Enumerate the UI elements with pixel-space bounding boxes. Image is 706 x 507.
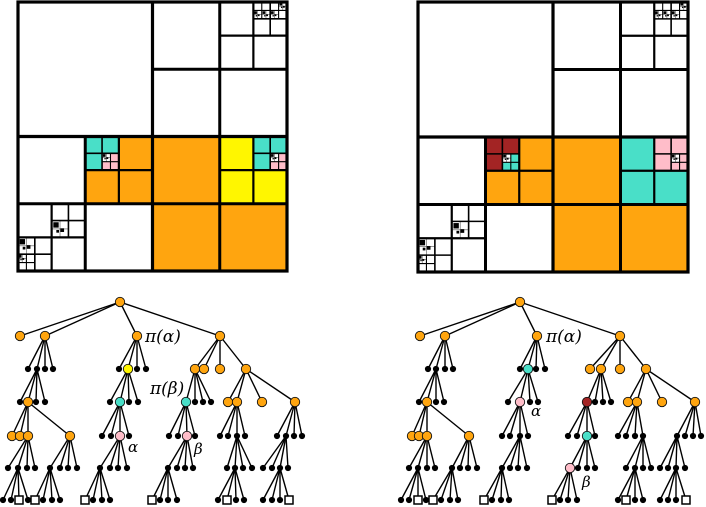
qt-cell-p xyxy=(110,162,118,170)
tree-node-o xyxy=(232,397,241,406)
qt-tinygrid-black-cell xyxy=(258,14,260,16)
tree-node-dot xyxy=(498,497,504,503)
tree-edge xyxy=(111,402,120,436)
qt-cell-y xyxy=(220,137,254,171)
qt-tinygrid-black-cell xyxy=(676,14,678,16)
tree-node-dot xyxy=(665,465,671,471)
tree-node-dot xyxy=(592,465,598,471)
tree-edge xyxy=(502,468,509,500)
qt-cell-o xyxy=(153,137,220,204)
qt-cell-p xyxy=(671,137,688,154)
tree-edge xyxy=(676,436,677,468)
tree-node-o xyxy=(223,397,232,406)
tree-node-r xyxy=(582,397,591,406)
tree-edge xyxy=(28,402,70,436)
tree-node-c xyxy=(582,431,591,440)
tree-edge xyxy=(277,402,295,436)
tree-node-dot xyxy=(698,433,704,439)
tree-node-p xyxy=(565,463,574,472)
tree-edge xyxy=(420,302,520,336)
tree-label: π(β) xyxy=(149,379,184,399)
tree-node-dot xyxy=(447,497,453,503)
tree-leaf-square xyxy=(622,496,630,504)
tree-node-dot xyxy=(424,465,430,471)
tree-node-p xyxy=(515,397,524,406)
tree-edge xyxy=(263,468,280,500)
tree-edge xyxy=(272,468,280,500)
tree-node-dot xyxy=(690,433,696,439)
tree-node-dot xyxy=(574,497,580,503)
qt-tinygrid-black-cell xyxy=(682,7,683,8)
tree-node-dot xyxy=(632,497,638,503)
tree-node-dot xyxy=(457,465,463,471)
qt-cell-c xyxy=(621,137,655,171)
tree-edge xyxy=(204,336,220,369)
tree-node-dot xyxy=(115,465,121,471)
qt-tinygrid-black-cell xyxy=(676,158,678,160)
qt-tinygrid-black-cell xyxy=(275,157,277,159)
qt-tinygrid-black-cell xyxy=(23,247,26,250)
tree-node-dot xyxy=(299,433,305,439)
tree-node-dot xyxy=(90,497,96,503)
tree-node-dot xyxy=(190,465,196,471)
qt-tinygrid-black-cell xyxy=(266,14,268,16)
tree-node-dot xyxy=(225,433,231,439)
qt-tinygrid-black-cell xyxy=(667,14,669,16)
tree-node-dot xyxy=(505,399,511,405)
tree-node-p xyxy=(115,431,124,440)
qt-tinygrid-black-cell xyxy=(672,155,675,158)
tree-edge xyxy=(568,402,587,436)
tree-node-dot xyxy=(673,497,679,503)
tree-node-o xyxy=(422,397,431,406)
tree-node-o xyxy=(215,331,224,340)
tree-node-o xyxy=(657,397,666,406)
tree-node-dot xyxy=(108,433,114,439)
tree-node-o xyxy=(190,364,199,373)
qt-tinygrid-black-cell xyxy=(503,155,506,158)
tree-node-o xyxy=(132,331,141,340)
qt-cell-p xyxy=(270,162,278,170)
tree-edge xyxy=(452,468,458,500)
tree-node-dot xyxy=(489,497,495,503)
tree-node-dot xyxy=(74,465,80,471)
tree-edge xyxy=(695,402,701,436)
qt-tinygrid-black-cell xyxy=(665,15,666,16)
tree-edge xyxy=(93,468,100,500)
tree-edge xyxy=(436,369,444,402)
tree-node-dot xyxy=(33,399,39,405)
tree-leaf-square xyxy=(682,496,690,504)
qt-cell-o xyxy=(153,204,220,271)
tree-node-dot xyxy=(449,465,455,471)
tree-node-dot xyxy=(32,465,38,471)
tree-leaf-square xyxy=(31,496,39,504)
qt-cell-o xyxy=(621,205,689,273)
qt-cell-o xyxy=(519,171,553,205)
tree-node-o xyxy=(615,364,624,373)
tree-node-dot xyxy=(450,366,456,372)
quadtree-figure-svg: π(α)π(β)αβπ(α)αβ xyxy=(0,0,706,507)
tree-node-o xyxy=(464,431,473,440)
qt-cell-c xyxy=(85,137,102,154)
tree-node-dot xyxy=(442,366,448,372)
qt-cell-c xyxy=(511,154,519,162)
tree-node-dot xyxy=(165,497,171,503)
tree-node-dot xyxy=(5,465,11,471)
tree-node-dot xyxy=(49,497,55,503)
tree-node-dot xyxy=(240,465,246,471)
tree-node-dot xyxy=(441,399,447,405)
tree-node-dot xyxy=(584,465,590,471)
tree-edge xyxy=(501,468,502,500)
tree-node-dot xyxy=(398,497,404,503)
tree-node-dot xyxy=(15,465,21,471)
qt-cell-o xyxy=(553,137,621,205)
tree-node-dot xyxy=(557,497,563,503)
tree-node-dot xyxy=(126,399,132,405)
qt-tinygrid-black-cell xyxy=(427,246,431,250)
tree-node-dot xyxy=(533,366,539,372)
tree-node-dot xyxy=(50,366,56,372)
tree-node-dot xyxy=(124,465,130,471)
tree-node-dot xyxy=(242,433,248,439)
tree-node-dot xyxy=(25,366,31,372)
qt-cell-c xyxy=(85,153,102,170)
qt-tinygrid-black-cell xyxy=(273,158,274,159)
tree-edge xyxy=(169,402,186,436)
qt-cell-y xyxy=(220,170,254,204)
tree-edge xyxy=(43,468,50,500)
tree-node-dot xyxy=(260,497,266,503)
tree-node-dot xyxy=(17,399,23,405)
qt-cell-c xyxy=(621,171,655,205)
tree-edge xyxy=(45,302,120,336)
tree-edge xyxy=(618,468,635,500)
qt-cell-p xyxy=(671,162,679,170)
qt-tinygrid-black-cell xyxy=(27,245,31,249)
tree-edge xyxy=(409,468,418,500)
tree-edge xyxy=(20,302,120,336)
tree-node-dot xyxy=(623,465,629,471)
qt-tinygrid-black-cell xyxy=(655,11,658,14)
tree-node-dot xyxy=(192,433,198,439)
qt-cell-c xyxy=(654,171,688,205)
qt-tinygrid-black-cell xyxy=(20,259,21,260)
qt-tinygrid-black-cell xyxy=(273,15,274,16)
tree-node-dot xyxy=(107,497,113,503)
tree-node-dot xyxy=(674,433,680,439)
tree-node-dot xyxy=(565,497,571,503)
tree-node-p xyxy=(182,431,191,440)
tree-node-o xyxy=(623,397,632,406)
qt-cell-c xyxy=(270,137,287,154)
tree-node-dot xyxy=(192,399,198,405)
tree-edge xyxy=(227,468,235,500)
qt-cell-y xyxy=(253,170,287,204)
tree-edge xyxy=(626,436,643,468)
tree-node-dot xyxy=(433,399,439,405)
tree-edge xyxy=(11,468,18,500)
tree-edge xyxy=(85,468,100,500)
tree-node-dot xyxy=(269,465,275,471)
qt-tinygrid-black-cell xyxy=(271,154,274,157)
tree-node-o xyxy=(515,297,524,306)
qt-tinygrid-black-cell xyxy=(263,11,266,14)
tree-node-dot xyxy=(241,497,247,503)
tree-edge xyxy=(637,402,643,436)
tree-node-dot xyxy=(34,366,40,372)
tree-edge xyxy=(677,436,685,468)
tree-node-dot xyxy=(517,366,523,372)
tree-node-o xyxy=(257,397,266,406)
tree-edge xyxy=(668,468,676,500)
qt-tinygrid-black-cell xyxy=(56,230,59,233)
qt-tinygrid-black-cell xyxy=(103,154,106,157)
tree-node-dot xyxy=(217,433,223,439)
tree-node-dot xyxy=(182,465,188,471)
qt-tinygrid-black-cell xyxy=(673,15,674,16)
tree-node-dot xyxy=(215,497,221,503)
tree-label: π(α) xyxy=(144,327,181,347)
tree-node-dot xyxy=(47,465,53,471)
tree-node-dot xyxy=(592,399,598,405)
tree-node-dot xyxy=(423,497,429,503)
tree-edge xyxy=(102,402,120,436)
tree-node-o xyxy=(23,397,32,406)
tree-node-dot xyxy=(455,497,461,503)
qt-cell-o xyxy=(220,204,287,271)
tree-node-dot xyxy=(506,497,512,503)
qt-cell-p xyxy=(110,153,118,161)
tree-edge xyxy=(220,336,246,369)
tree-node-o xyxy=(241,364,250,373)
tree-node-dot xyxy=(640,433,646,439)
tree-edge xyxy=(50,436,70,468)
tree-edge xyxy=(195,336,220,369)
tree-edge xyxy=(660,436,677,468)
tree-label: α xyxy=(128,438,138,456)
tree-node-dot xyxy=(232,465,238,471)
tree-node-dot xyxy=(515,465,521,471)
tree-label: α xyxy=(531,402,541,420)
tree-edge xyxy=(37,369,45,402)
tree-node-dot xyxy=(525,433,531,439)
tree-node-o xyxy=(215,364,224,373)
tree-node-dot xyxy=(135,399,141,405)
qt-tinygrid-black-cell xyxy=(106,157,108,159)
tree-node-dot xyxy=(565,433,571,439)
qt-tinygrid-black-cell xyxy=(422,259,424,261)
tree-node-dot xyxy=(657,497,663,503)
tree-label: β xyxy=(193,440,203,458)
qt-tinygrid-black-cell xyxy=(271,11,274,14)
qt-tinygrid-black-cell xyxy=(453,223,458,228)
tree-edge xyxy=(577,402,587,436)
tree-node-dot xyxy=(42,366,48,372)
tree-node-dot xyxy=(499,465,505,471)
tree-node-dot xyxy=(208,399,214,405)
tree-edge xyxy=(36,369,37,402)
tree-node-dot xyxy=(285,465,291,471)
tree-node-o xyxy=(15,331,24,340)
tree-node-dot xyxy=(657,465,663,471)
tree-node-dot xyxy=(406,497,412,503)
tree-node-dot xyxy=(665,497,671,503)
tree-edge xyxy=(643,436,651,468)
tree-node-dot xyxy=(425,366,431,372)
qt-tinygrid-black-cell xyxy=(60,228,64,232)
tree-node-dot xyxy=(416,399,422,405)
qt-cell-c xyxy=(253,137,270,154)
qt-cell-p xyxy=(654,154,671,171)
qt-tinygrid-black-cell xyxy=(22,258,24,260)
tree-edge xyxy=(295,402,302,436)
tree-node-dot xyxy=(42,399,48,405)
tree-edge xyxy=(520,402,528,436)
tree-node-c xyxy=(115,397,124,406)
tree-edge xyxy=(590,336,620,369)
tree-node-dot xyxy=(24,465,30,471)
tree-node-dot xyxy=(97,465,103,471)
tree-node-dot xyxy=(0,497,6,503)
tree-node-dot xyxy=(274,433,280,439)
tree-leaf-square xyxy=(81,496,89,504)
tree-node-dot xyxy=(269,497,275,503)
qt-tinygrid-black-cell xyxy=(423,248,426,251)
tree-node-dot xyxy=(277,497,283,503)
tree-node-dot xyxy=(433,366,439,372)
tree-edge xyxy=(418,468,426,500)
tree-node-dot xyxy=(166,433,172,439)
tree-edge xyxy=(152,468,168,500)
tree-node-dot xyxy=(592,433,598,439)
tree-node-dot xyxy=(174,465,180,471)
tree-node-dot xyxy=(234,433,240,439)
tree-node-dot xyxy=(57,465,63,471)
tree-edge xyxy=(237,402,245,436)
tree-node-dot xyxy=(623,433,629,439)
qt-tinygrid-black-cell xyxy=(53,222,58,227)
tree-node-dot xyxy=(632,433,638,439)
qt-cell-r xyxy=(486,154,503,171)
tree-node-dot xyxy=(632,465,638,471)
tree-leaf-square xyxy=(429,496,437,504)
tree-edge xyxy=(601,336,620,369)
tree-node-dot xyxy=(575,465,581,471)
tree-node-o xyxy=(440,331,449,340)
tree-edge xyxy=(120,402,129,436)
tree-edge xyxy=(280,468,289,500)
qt-cell-r xyxy=(502,137,519,154)
tree-node-dot xyxy=(474,465,480,471)
tree-node-dot xyxy=(99,497,105,503)
qt-tinygrid-black-cell xyxy=(104,158,105,159)
tree-node-dot xyxy=(116,366,122,372)
tree-node-dot xyxy=(507,433,513,439)
qt-tinygrid-black-cell xyxy=(254,11,257,14)
tree-node-dot xyxy=(8,497,14,503)
tree-node-o xyxy=(641,364,650,373)
tree-node-dot xyxy=(648,465,654,471)
tree-node-dot xyxy=(640,465,646,471)
tree-edge xyxy=(168,468,177,500)
tree-edge xyxy=(445,302,520,336)
tree-edge xyxy=(676,468,686,500)
tree-node-dot xyxy=(224,465,230,471)
tree-node-dot xyxy=(99,433,105,439)
qt-cell-r xyxy=(486,137,503,154)
tree-node-dot xyxy=(608,399,614,405)
tree-edge xyxy=(635,436,643,468)
tree-edge xyxy=(28,336,45,369)
tree-node-dot xyxy=(134,366,140,372)
qt-tinygrid-black-cell xyxy=(275,14,277,16)
tree-edge xyxy=(587,402,595,436)
tree-label: β xyxy=(581,473,591,491)
tree-node-dot xyxy=(415,465,421,471)
qt-tinygrid-black-cell xyxy=(684,6,686,8)
qt-cell-c xyxy=(253,153,270,170)
tree-edge xyxy=(660,468,676,500)
qt-tinygrid-black-cell xyxy=(657,15,658,16)
tree-leaf-square xyxy=(148,496,156,504)
tree-edge xyxy=(452,436,469,468)
tree-node-dot xyxy=(507,465,513,471)
tree-leaf-square xyxy=(414,496,422,504)
tree-node-dot xyxy=(291,433,297,439)
tree-node-dot xyxy=(277,465,283,471)
tree-node-o xyxy=(23,431,32,440)
tree-node-dot xyxy=(249,465,255,471)
tree-node-dot xyxy=(406,465,412,471)
tree-node-o xyxy=(40,331,49,340)
tree-node-dot xyxy=(524,465,530,471)
tree-node-o xyxy=(115,297,124,306)
tree-edge xyxy=(160,468,168,500)
qt-tinygrid-black-cell xyxy=(264,15,265,16)
tree-node-o xyxy=(199,364,208,373)
qt-cell-c xyxy=(502,162,510,170)
tree-edge xyxy=(35,468,50,500)
tree-node-y xyxy=(123,364,132,373)
tree-leaf-square xyxy=(15,496,23,504)
qt-cell-p xyxy=(102,162,110,170)
tree-edge xyxy=(20,402,28,436)
tree-edge xyxy=(401,468,418,500)
tree-edge xyxy=(228,402,237,436)
tree-node-dot xyxy=(574,433,580,439)
tree-edge xyxy=(168,436,187,468)
tree-edge xyxy=(570,436,587,468)
tree-node-dot xyxy=(615,497,621,503)
tree-node-o xyxy=(690,397,699,406)
tree-edge xyxy=(620,336,646,369)
qt-cell-o xyxy=(119,137,153,171)
tree-node-c xyxy=(523,364,532,373)
tree-node-o xyxy=(290,397,299,406)
tree-node-dot xyxy=(600,399,606,405)
tree-node-dot xyxy=(432,465,438,471)
qt-cell-o xyxy=(486,171,520,205)
tree-node-dot xyxy=(175,433,181,439)
tree-node-dot xyxy=(107,399,113,405)
tree-leaf-square xyxy=(285,496,293,504)
tree-node-dot xyxy=(25,497,31,503)
qt-tinygrid-black-cell xyxy=(673,159,674,160)
tree-node-dot xyxy=(682,465,688,471)
tree-leaf-square xyxy=(223,496,231,504)
